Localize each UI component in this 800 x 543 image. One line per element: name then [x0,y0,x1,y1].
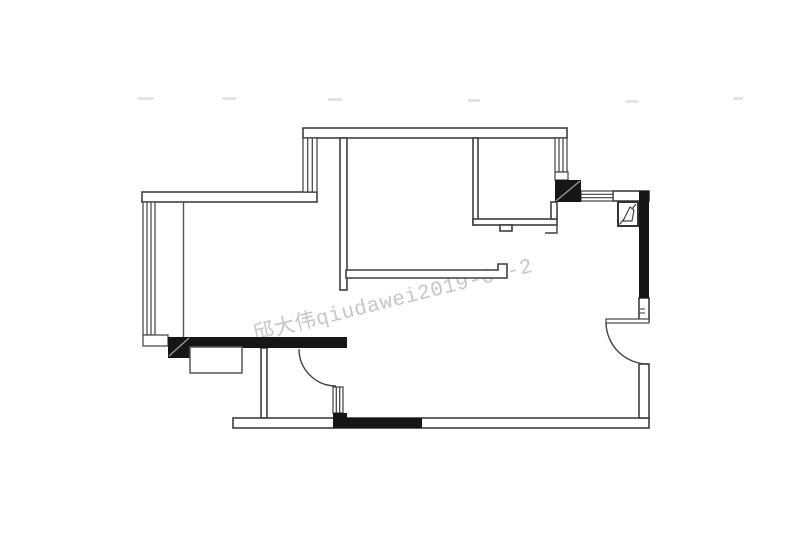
wall-bedroom-top [142,192,317,202]
bathroom-window [333,387,343,413]
kitchen-window-right [555,138,567,172]
kitchen-wall-left [473,138,478,225]
kitchen-door-stop-tab [500,225,512,231]
watermark-remnant-dash [468,99,480,102]
wall-partition-horizontal [346,264,507,278]
wall-bottom [233,418,649,428]
window-left [143,202,155,335]
kitchen-window-sill [555,172,568,180]
flue-shaft-symbol [618,202,638,226]
wall-right-lower [639,364,649,418]
right-door-arc [606,323,648,364]
wall-bottom-black-segment [333,418,422,428]
watermark-remnant-dash [138,97,154,100]
bathroom-door-arc [299,349,336,386]
watermark-remnant-dash [626,100,638,103]
watermark-remnant-dash [222,97,236,100]
watermark-remnant-row [138,97,743,103]
wall-top-main [303,128,567,138]
kitchen-wall-bottom [473,219,557,225]
right-door-leaf [606,319,649,323]
wall-right-black [639,191,649,298]
bay-window-top [303,138,317,192]
window-left-sill [143,335,168,346]
window-top-right [581,191,613,201]
floor-plan-svg [0,0,800,543]
kitchen-wall-right [551,202,557,219]
watermark-remnant-dash [733,97,743,100]
wall-bathroom-left [261,348,267,418]
wall-bedroom-right [340,138,347,290]
watermark-remnant-dash [328,98,342,101]
kitchen-wall-endcap [545,225,557,233]
cabinet [190,347,242,373]
floor-plan-canvas: 邱大伟qiudawei2019-04-2 [0,0,800,543]
